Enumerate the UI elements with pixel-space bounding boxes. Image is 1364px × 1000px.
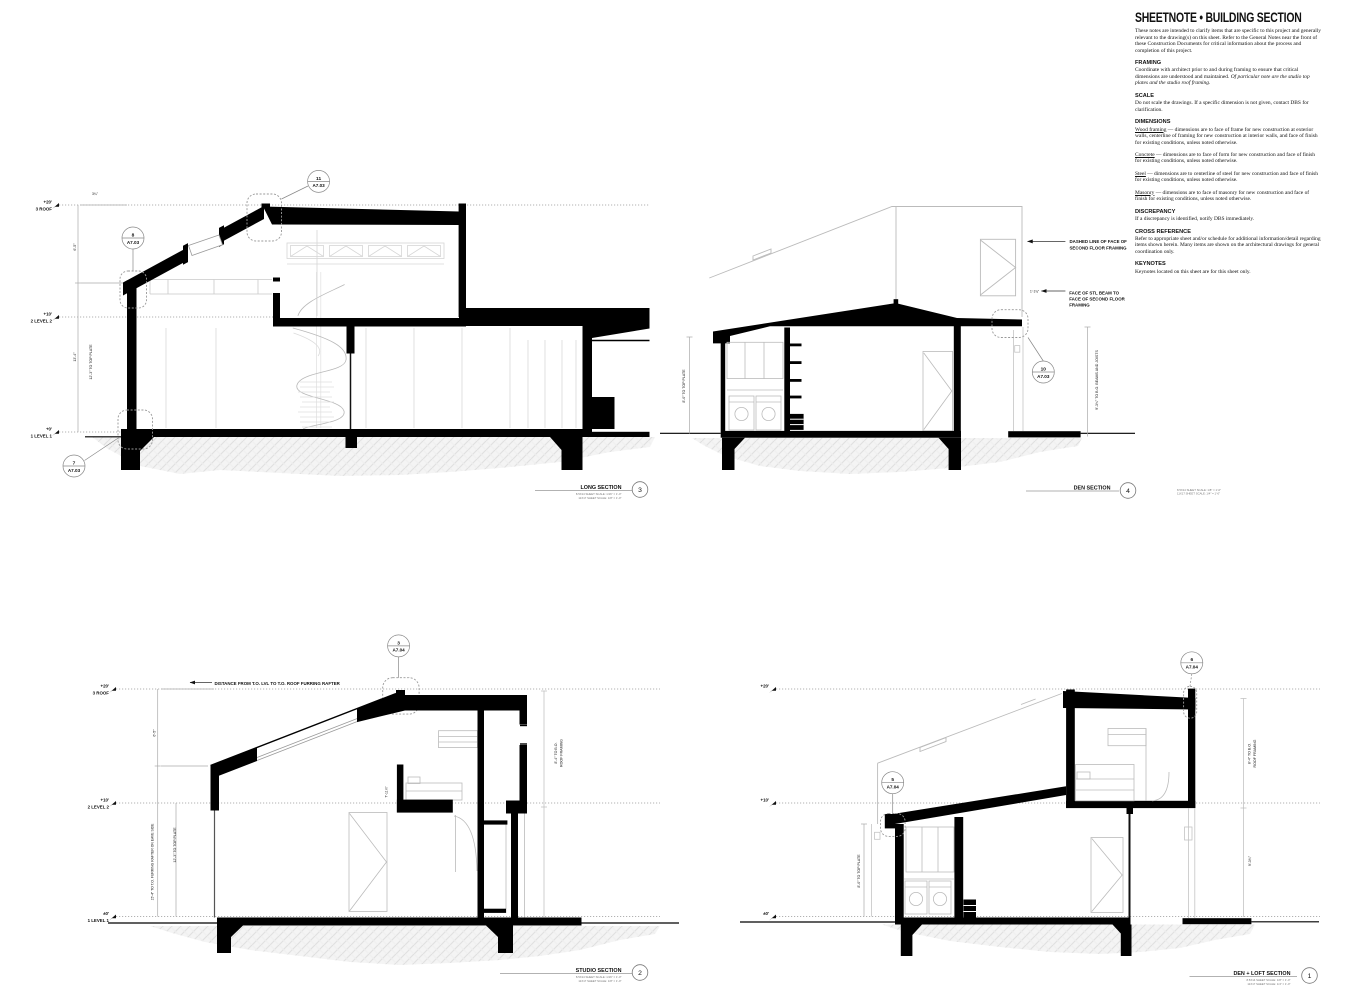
svg-text:FRAMING: FRAMING [1069, 303, 1090, 308]
svg-text:3: 3 [397, 640, 400, 646]
svg-text:7'-11⅞": 7'-11⅞" [385, 786, 389, 798]
svg-text:FACE OF STL BEAM TO: FACE OF STL BEAM TO [1069, 290, 1119, 295]
svg-text:10: 10 [1041, 366, 1047, 372]
svg-text:1'-1¾": 1'-1¾" [1030, 289, 1039, 293]
svg-text:±0': ±0' [103, 911, 109, 916]
svg-text:2 LEVEL 2: 2 LEVEL 2 [88, 805, 110, 810]
svg-text:ROOF FRAMING: ROOF FRAMING [560, 739, 564, 767]
svg-text:LONG SECTION: LONG SECTION [580, 485, 621, 491]
svg-text:+10': +10' [761, 798, 770, 803]
svg-text:8'-4" TO B.O.: 8'-4" TO B.O. [1248, 743, 1252, 764]
svg-text:8'-4" TO B.O.: 8'-4" TO B.O. [554, 742, 558, 763]
svg-text:+10': +10' [101, 798, 110, 803]
svg-text:3 ROOF: 3 ROOF [36, 207, 53, 212]
svg-text:+0': +0' [46, 427, 52, 432]
svg-text:6: 6 [1190, 657, 1193, 663]
svg-text:A7.03: A7.03 [312, 183, 325, 188]
svg-text:8'-0" TO TOP PLATE: 8'-0" TO TOP PLATE [682, 369, 686, 403]
svg-text:11X17 SHEET SCALE: 1/4" = 1'-0: 11X17 SHEET SCALE: 1/4" = 1'-0" [1177, 492, 1220, 496]
svg-text:STUDIO SECTION: STUDIO SECTION [576, 968, 622, 974]
svg-text:7: 7 [73, 460, 76, 466]
svg-text:5: 5 [891, 777, 894, 783]
svg-text:ROOF FRAMING: ROOF FRAMING [1253, 739, 1257, 767]
svg-text:6'-5": 6'-5" [153, 729, 157, 737]
svg-text:1 LEVEL 1: 1 LEVEL 1 [88, 918, 110, 923]
svg-text:12'-3" TO TOP PLATE: 12'-3" TO TOP PLATE [173, 827, 177, 863]
svg-text:FACE OF SECOND FLOOR: FACE OF SECOND FLOOR [1069, 297, 1125, 302]
svg-text:A7.03: A7.03 [127, 240, 140, 245]
svg-text:9'-3¾": 9'-3¾" [1248, 855, 1252, 866]
svg-text:9'-3¾" TO B.O. BEAMS AND JOIST: 9'-3¾" TO B.O. BEAMS AND JOISTS [1095, 350, 1099, 410]
svg-text:A7.04: A7.04 [1186, 665, 1199, 670]
svg-text:+20': +20' [44, 200, 53, 205]
svg-text:3: 3 [638, 487, 642, 494]
svg-text:13'-4": 13'-4" [73, 352, 77, 362]
svg-text:11X17 SHEET SCALE: 1/4" = 1'-0: 11X17 SHEET SCALE: 1/4" = 1'-0" [1247, 982, 1290, 986]
svg-text:SECOND FLOOR FRAMING: SECOND FLOOR FRAMING [1070, 245, 1128, 250]
svg-text:1 LEVEL 1: 1 LEVEL 1 [31, 434, 53, 439]
svg-text:3¼": 3¼" [92, 192, 99, 196]
svg-text:12'-3" TO TOP PLATE: 12'-3" TO TOP PLATE [89, 344, 93, 380]
svg-text:1: 1 [1308, 973, 1312, 980]
svg-text:4: 4 [1126, 488, 1130, 495]
svg-text:A7.04: A7.04 [392, 648, 405, 653]
svg-text:DASHED LINE OF FACE OF: DASHED LINE OF FACE OF [1070, 239, 1128, 244]
svg-text:DEN + LOFT SECTION: DEN + LOFT SECTION [1233, 971, 1290, 977]
svg-text:11X17 SHEET SCALE: 1/8" = 1'-0: 11X17 SHEET SCALE: 1/8" = 1'-0" [578, 979, 621, 983]
svg-text:3 ROOF: 3 ROOF [93, 691, 110, 696]
svg-text:±0': ±0' [763, 911, 769, 916]
svg-text:11X17 SHEET SCALE: 1/8" = 1'-0: 11X17 SHEET SCALE: 1/8" = 1'-0" [578, 496, 621, 500]
svg-text:2 LEVEL 2: 2 LEVEL 2 [31, 319, 53, 324]
svg-text:A7.03: A7.03 [68, 468, 81, 473]
svg-text:+10': +10' [44, 312, 53, 317]
svg-text:+20': +20' [761, 684, 770, 689]
svg-text:8'-0" TO TOP PLATE: 8'-0" TO TOP PLATE [857, 854, 861, 888]
svg-text:DISTANCE FROM T.O. LVL TO T.O.: DISTANCE FROM T.O. LVL TO T.O. ROOF FURR… [215, 681, 341, 686]
svg-text:+20': +20' [101, 684, 110, 689]
svg-text:DEN SECTION: DEN SECTION [1074, 486, 1111, 492]
svg-text:15'-4" TO T.O. FURRING RAFTER: 15'-4" TO T.O. FURRING RAFTER ON EAVE SI… [151, 823, 155, 901]
svg-text:11: 11 [316, 176, 321, 182]
svg-text:A7.04: A7.04 [887, 785, 900, 790]
svg-text:6'-5": 6'-5" [73, 243, 77, 251]
svg-text:A7.03: A7.03 [1037, 374, 1050, 379]
svg-text:8: 8 [132, 232, 135, 238]
svg-text:2: 2 [638, 970, 642, 977]
